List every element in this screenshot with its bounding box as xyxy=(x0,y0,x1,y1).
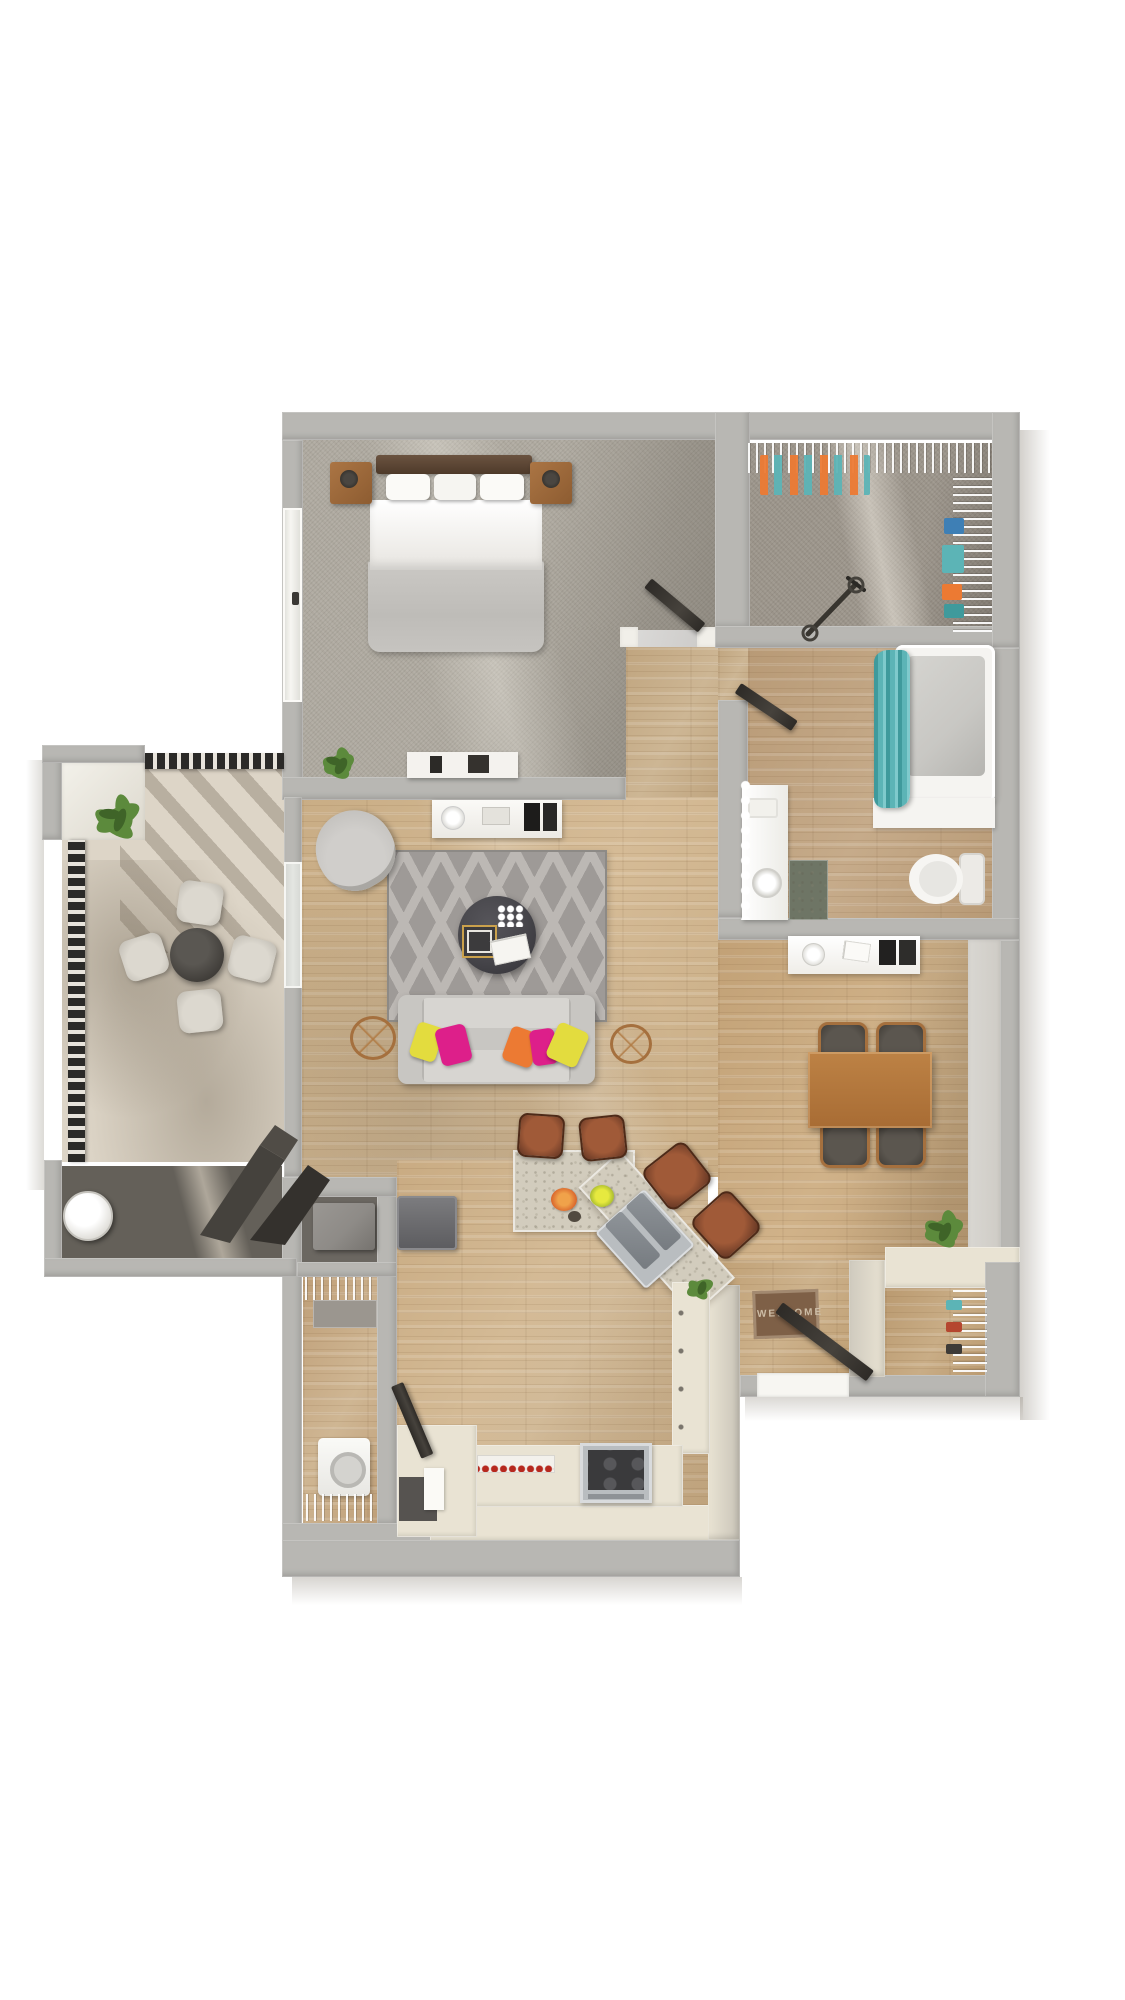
hall-console-bowl xyxy=(802,943,825,966)
hall-console-book xyxy=(842,940,871,963)
building-shadow-bottom xyxy=(292,1577,742,1605)
entry-shadow-bottom xyxy=(745,1397,1023,1421)
hall-floor xyxy=(626,647,718,800)
closet-bicycle xyxy=(798,570,872,642)
bed-pillow-1 xyxy=(386,474,430,500)
island-bowl-small xyxy=(568,1211,581,1222)
bedroom-dresser xyxy=(407,752,518,778)
toilet xyxy=(906,850,988,908)
patio-plant xyxy=(84,782,150,856)
closet-hanging-clothes xyxy=(760,455,870,495)
hall-console-tray-2 xyxy=(899,940,916,965)
wall-bedroom-door-stub-left xyxy=(620,627,638,647)
wall-right-bathroom xyxy=(992,648,1020,940)
side-table-left xyxy=(350,1016,396,1060)
wall-coat-right xyxy=(985,1262,1020,1397)
bed-sheet xyxy=(370,500,542,570)
side-table-right xyxy=(610,1024,652,1064)
shoe-rack-item-teal xyxy=(946,1300,962,1310)
dresser-decor-1 xyxy=(430,756,442,773)
washer-door-ring xyxy=(330,1452,366,1488)
patio-table xyxy=(170,928,224,982)
wall-utility-bottom xyxy=(297,1262,397,1277)
wall-right-closet xyxy=(992,412,1020,648)
bed-pillow-2 xyxy=(434,474,476,500)
bar-stool-2 xyxy=(578,1114,628,1163)
shower-curtain-teal xyxy=(874,650,910,808)
storage-wall-bottom xyxy=(44,1258,297,1277)
wall-dining-right xyxy=(1000,940,1020,1262)
spice-tray xyxy=(477,1455,555,1473)
wall-top xyxy=(282,412,1020,440)
patio-wall-top xyxy=(42,745,145,763)
nightstand-left-lamp xyxy=(340,470,358,488)
dresser-decor-2 xyxy=(468,755,489,773)
dining-plant xyxy=(912,1200,976,1262)
bed-headboard xyxy=(376,455,532,474)
tv-panel-1 xyxy=(524,803,540,831)
building-shadow-right xyxy=(1020,430,1050,1420)
shoe-rack-item-dark xyxy=(946,1344,962,1354)
laundry-cabinet xyxy=(313,1300,377,1328)
patio-sliding-door-glass xyxy=(284,862,302,988)
bedroom-window-handle xyxy=(292,592,299,605)
vanity-light-dots xyxy=(738,778,753,920)
bathtub-basin xyxy=(907,656,985,776)
wall-bedroom-closet-divider xyxy=(715,412,750,628)
patio-folded-lounger xyxy=(190,1085,340,1245)
patio-chair-top xyxy=(175,879,224,927)
closet-folded-teal-1 xyxy=(942,545,964,573)
floorplan-render: WELCOME xyxy=(0,0,1125,2000)
hall-console-tray-1 xyxy=(879,940,896,965)
wall-kitchen-bottom xyxy=(282,1540,740,1577)
coffee-table-flowers xyxy=(497,905,524,927)
bedroom-plant xyxy=(314,736,364,792)
island-bowl-orange xyxy=(551,1188,577,1211)
water-heater xyxy=(63,1191,113,1241)
stove-handle xyxy=(588,1494,644,1499)
island-bowl-yellow xyxy=(590,1185,614,1207)
laundry-shelf-bottom xyxy=(306,1494,374,1521)
bath-mat-granite xyxy=(789,860,828,920)
bedroom-window xyxy=(283,508,302,702)
bar-stool-1 xyxy=(517,1112,566,1159)
kitchen-corner-post xyxy=(424,1468,444,1510)
entry-door-threshold xyxy=(757,1373,849,1397)
patio-railing-top xyxy=(145,753,284,769)
stove-cooktop xyxy=(588,1450,644,1490)
patio-chair-bottom xyxy=(176,988,224,1034)
kitchen-counter-plant xyxy=(678,1268,722,1308)
bed-blanket xyxy=(368,560,544,652)
vanity-sink xyxy=(752,868,782,898)
closet-folded-orange xyxy=(942,584,962,600)
laundry-shelf-top xyxy=(305,1277,375,1300)
wall-kitchen-entry-divider xyxy=(708,1285,740,1540)
wall-laundry-kitchen-divider xyxy=(377,1195,397,1525)
closet-folded-teal-2 xyxy=(944,604,964,618)
shoe-rack-item-red xyxy=(946,1322,962,1332)
refrigerator xyxy=(397,1196,457,1250)
sofa-back-cushions xyxy=(422,998,571,1028)
tv-console-tray xyxy=(482,807,510,825)
closet-folded-blue xyxy=(944,518,964,534)
bed-pillow-3 xyxy=(480,474,524,500)
patio-railing-left xyxy=(68,840,85,1162)
dining-table xyxy=(808,1052,932,1128)
tv-panel-2 xyxy=(543,803,557,831)
tv-console-cup xyxy=(441,806,465,830)
